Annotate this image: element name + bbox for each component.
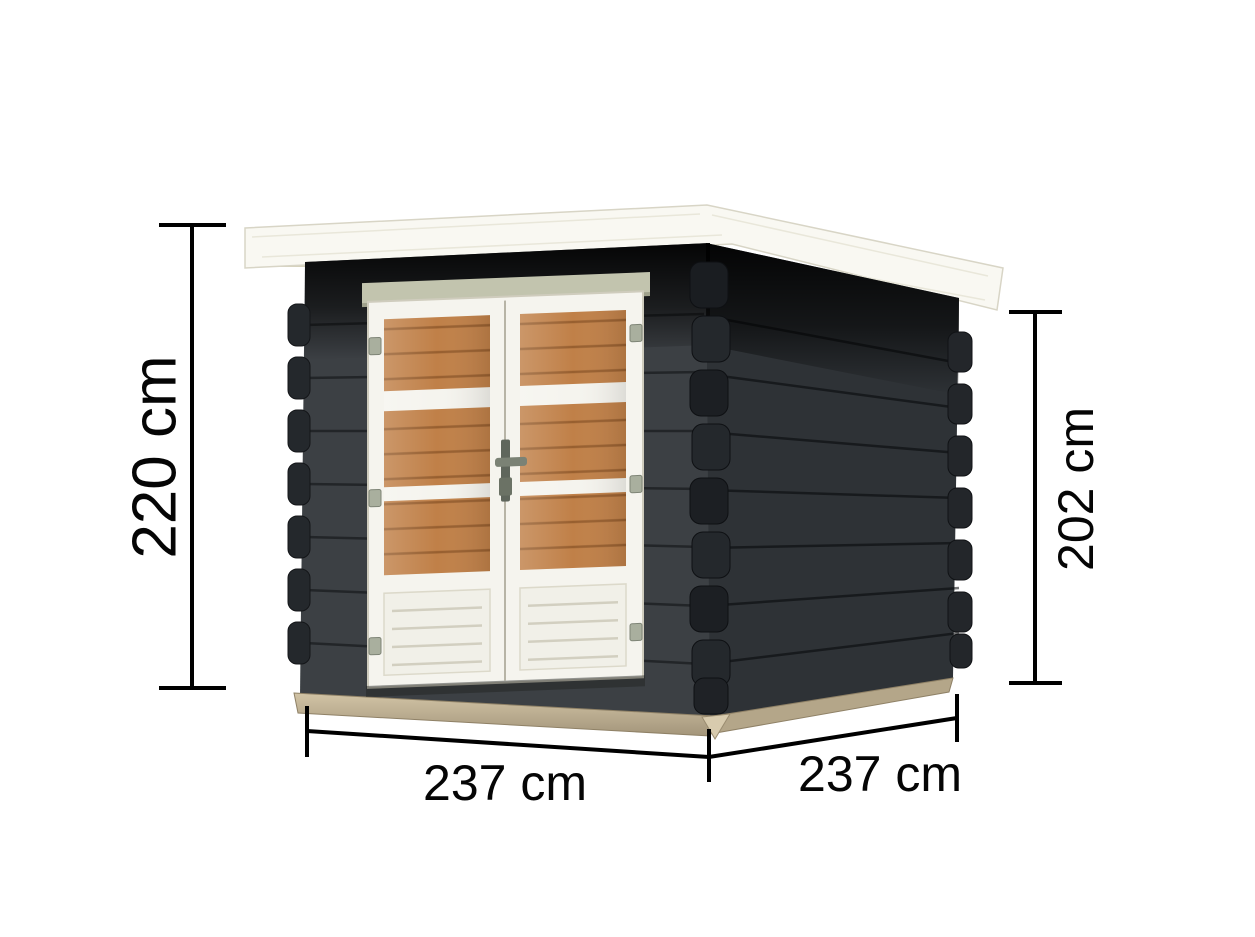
label-depth-side: 237 cm: [798, 746, 962, 802]
double-door: [362, 272, 650, 697]
label-height-total: 220 cm: [121, 355, 190, 558]
front-corner-logs: [690, 262, 730, 714]
door-windows-right-leaf: [520, 310, 626, 570]
shed-illustration: [245, 205, 1003, 739]
shed-dimension-diagram: 220 cm 202 cm 237 cm 237 cm: [0, 0, 1255, 937]
diagram-canvas: 220 cm 202 cm 237 cm 237 cm: [0, 0, 1255, 937]
door-windows-left-leaf: [384, 315, 490, 575]
label-height-wall: 202 cm: [1048, 407, 1104, 571]
label-width-front: 237 cm: [423, 755, 587, 811]
